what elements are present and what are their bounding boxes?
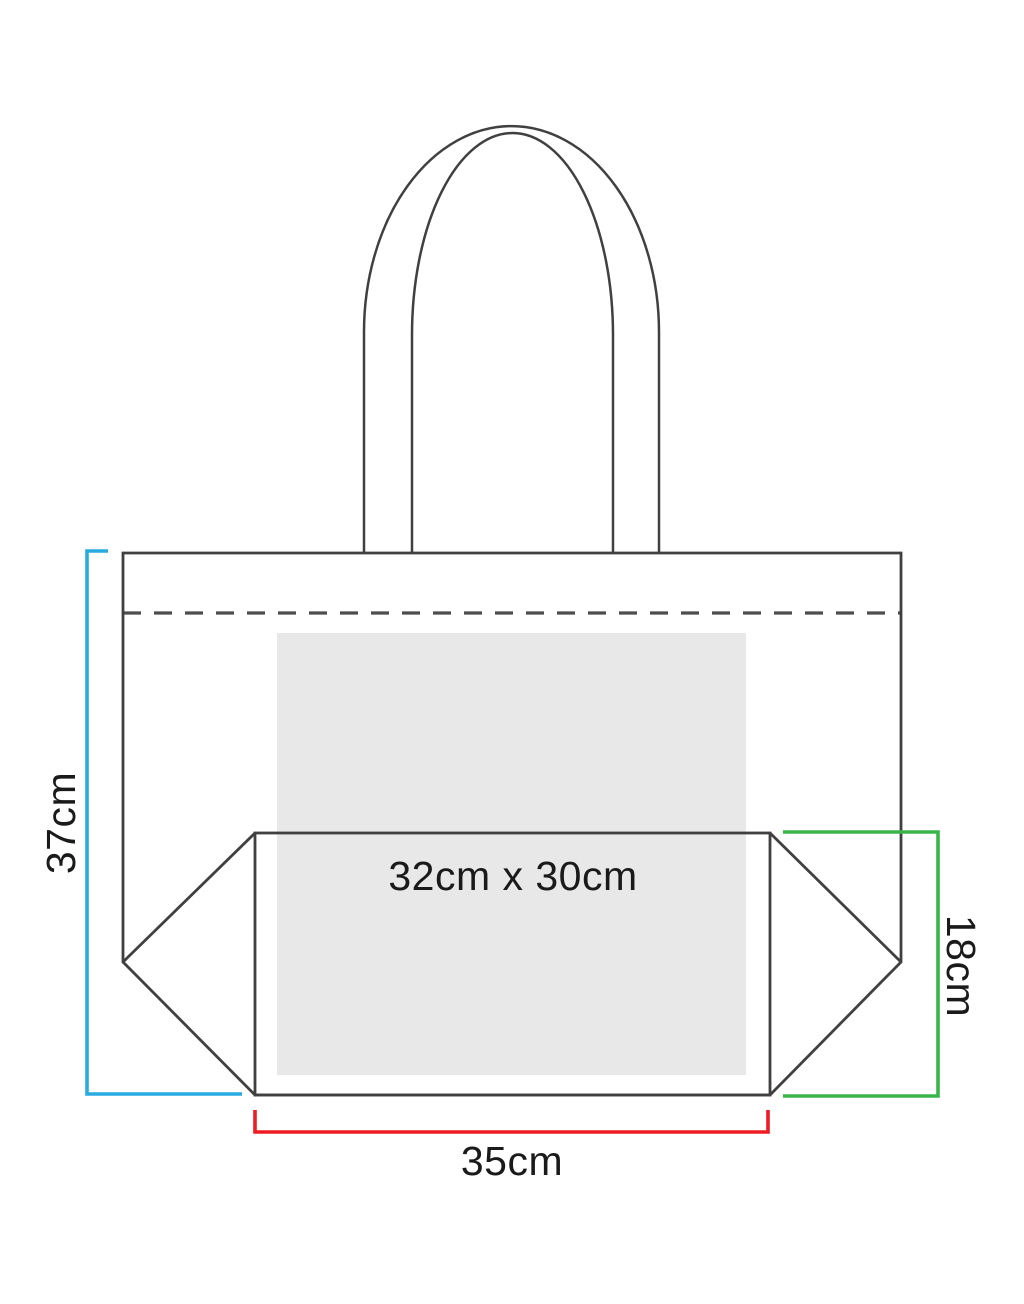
handle-inner-edge [412,133,613,553]
print-area-label: 32cm x 30cm [388,853,637,899]
gusset-dimension-label: 18cm [938,915,984,1017]
gusset-fold-right [770,833,901,962]
gusset-fold-left [123,833,255,962]
handle-outer-edge [364,126,659,553]
height-dimension-line [87,551,242,1094]
tote-bag-spec-page: 37cm 35cm 18cm 32cm x 30cm [0,0,1024,1304]
tote-bag-diagram: 37cm 35cm 18cm 32cm x 30cm [0,0,1024,1304]
height-dimension-label: 37cm [38,772,84,874]
width-dimension-line [255,1110,768,1132]
width-dimension-label: 35cm [461,1138,563,1184]
